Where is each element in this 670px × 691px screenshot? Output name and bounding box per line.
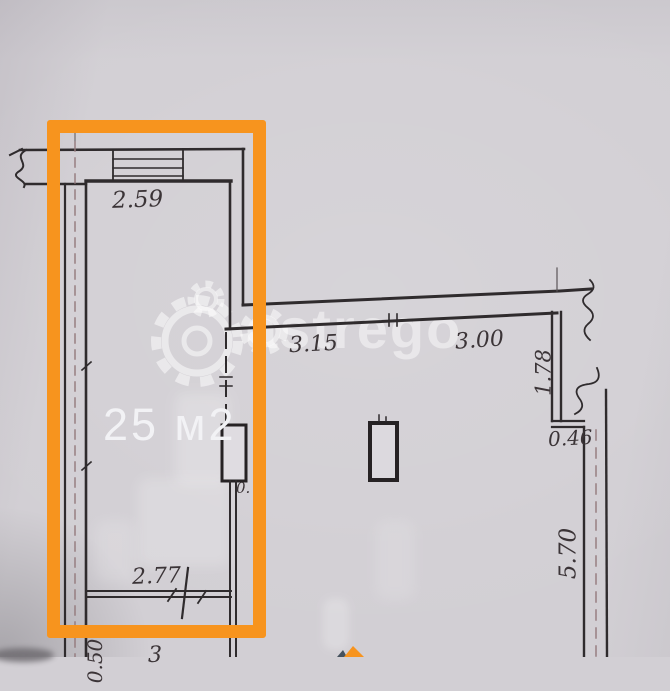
break-line <box>575 368 599 414</box>
dimension-wall-fragment: 0. <box>236 481 250 496</box>
dimension-top-width: 2.59 <box>112 188 164 213</box>
photo-smudge <box>0 648 54 662</box>
wall-right-long <box>575 368 607 657</box>
dimension-right-wall: 5.70 <box>558 518 581 590</box>
dimension-ledge-width: 0.46 <box>548 427 594 449</box>
dimension-room-bottom: 2.77 <box>132 565 182 589</box>
column-symbol <box>370 415 397 480</box>
corridor-walls <box>226 280 594 340</box>
floorplan-photo: astrego <box>0 0 670 657</box>
dimension-corridor-left: 3.15 <box>288 333 338 358</box>
dimension-bottom-center-cut: 3 <box>148 645 162 667</box>
dimension-bottom-left-cut: 0.50 <box>85 631 105 691</box>
dimension-corridor-right: 3.00 <box>454 328 504 353</box>
dimension-niche-depth: 1.78 <box>534 343 555 403</box>
room-area-label: 25 м2 <box>103 399 237 451</box>
logo-mark-cut <box>337 646 364 657</box>
